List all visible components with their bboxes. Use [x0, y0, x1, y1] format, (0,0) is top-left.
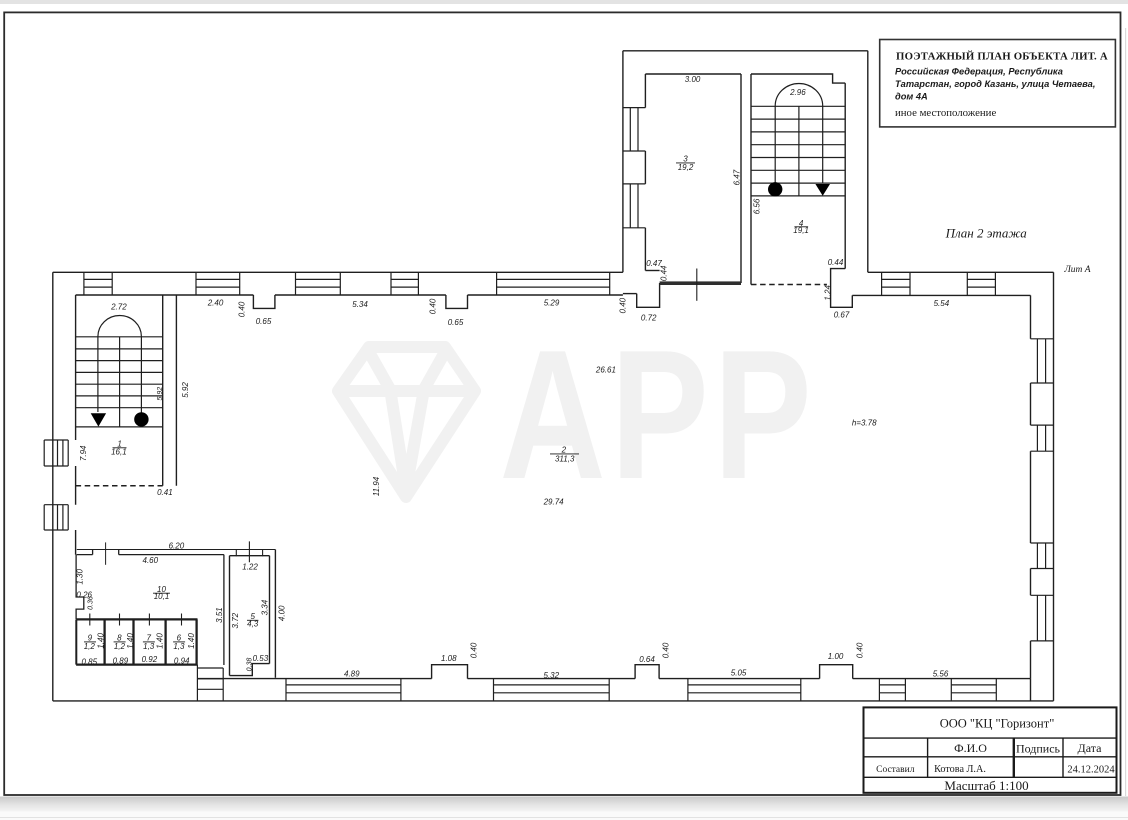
svg-text:7: 7 [146, 633, 151, 642]
svg-text:2.40: 2.40 [207, 298, 224, 307]
svg-text:6.56: 6.56 [753, 198, 762, 214]
svg-text:АРР: АРР [499, 312, 816, 517]
svg-text:0.65: 0.65 [256, 317, 272, 326]
svg-text:16,1: 16,1 [111, 448, 127, 457]
svg-text:1.40: 1.40 [187, 633, 196, 649]
svg-text:иное местоположение: иное местоположение [895, 107, 996, 119]
svg-text:0.64: 0.64 [639, 655, 655, 664]
svg-text:План 2 этажа: План 2 этажа [945, 226, 1028, 241]
svg-text:2: 2 [561, 446, 567, 455]
svg-text:3.72: 3.72 [231, 612, 240, 628]
svg-text:1,3: 1,3 [173, 642, 185, 651]
svg-text:0.44: 0.44 [828, 258, 844, 267]
svg-text:1.08: 1.08 [441, 654, 457, 663]
svg-text:1,2: 1,2 [114, 642, 126, 651]
svg-text:9: 9 [88, 633, 93, 642]
svg-text:0.85: 0.85 [82, 657, 98, 666]
svg-text:19,1: 19,1 [793, 226, 809, 235]
svg-text:5.92: 5.92 [181, 382, 190, 398]
svg-text:0.36: 0.36 [87, 596, 94, 610]
svg-text:24.12.2024: 24.12.2024 [1067, 764, 1115, 775]
svg-text:0.40: 0.40 [237, 301, 246, 317]
svg-text:2.72: 2.72 [110, 302, 127, 311]
svg-text:Татарстан, город Казань, улица: Татарстан, город Казань, улица Четаева, [895, 79, 1095, 89]
svg-text:2.96: 2.96 [789, 88, 806, 97]
svg-text:3.34: 3.34 [261, 599, 270, 615]
svg-text:1.40: 1.40 [96, 633, 105, 649]
svg-text:0.72: 0.72 [641, 313, 657, 322]
svg-text:8: 8 [117, 633, 122, 642]
svg-text:6.47: 6.47 [732, 169, 741, 185]
svg-text:5.34: 5.34 [352, 300, 368, 309]
svg-text:Лит А: Лит А [1063, 265, 1090, 275]
svg-text:1.00: 1.00 [828, 652, 844, 661]
svg-text:Ф.И.О: Ф.И.О [954, 741, 987, 755]
svg-text:5.92: 5.92 [157, 387, 164, 401]
svg-text:29.74: 29.74 [543, 497, 565, 506]
svg-text:0.40: 0.40 [469, 642, 478, 658]
svg-text:ПОЭТАЖНЫЙ ПЛАН ОБЪЕКТА ЛИТ. А: ПОЭТАЖНЫЙ ПЛАН ОБЪЕКТА ЛИТ. А [896, 51, 1108, 63]
svg-text:Составил: Составил [876, 765, 915, 775]
svg-text:0.94: 0.94 [174, 656, 190, 665]
svg-text:0.65: 0.65 [448, 318, 464, 327]
svg-text:0.40: 0.40 [619, 297, 628, 313]
svg-text:0.92: 0.92 [142, 655, 158, 664]
svg-text:11.94: 11.94 [372, 476, 381, 496]
svg-text:1,3: 1,3 [143, 642, 155, 651]
svg-text:0.89: 0.89 [113, 656, 129, 665]
svg-text:0.53: 0.53 [253, 654, 269, 663]
svg-text:5.54: 5.54 [934, 299, 950, 308]
svg-text:0.67: 0.67 [834, 310, 850, 319]
svg-text:3.00: 3.00 [685, 75, 701, 84]
svg-text:h=3.78: h=3.78 [852, 418, 877, 427]
svg-text:1.24: 1.24 [824, 285, 833, 301]
svg-text:5.29: 5.29 [544, 298, 560, 307]
svg-text:0.40: 0.40 [661, 642, 670, 658]
svg-text:Котова Л.А.: Котова Л.А. [934, 764, 986, 775]
svg-text:Дата: Дата [1078, 741, 1103, 755]
svg-text:0.40: 0.40 [855, 642, 864, 658]
svg-text:1.22: 1.22 [242, 563, 258, 572]
svg-text:7.94: 7.94 [79, 445, 88, 461]
svg-text:0.41: 0.41 [157, 488, 173, 497]
svg-text:0.40: 0.40 [428, 298, 437, 314]
svg-text:19,2: 19,2 [678, 163, 694, 172]
svg-text:4.00: 4.00 [278, 605, 287, 621]
svg-text:Российская Федерация, Республи: Российская Федерация, Республика [895, 67, 1063, 77]
svg-text:3.51: 3.51 [215, 607, 224, 623]
svg-text:6.20: 6.20 [169, 542, 185, 551]
svg-text:ООО "КЦ "Горизонт": ООО "КЦ "Горизонт" [940, 716, 1055, 730]
svg-text:5.32: 5.32 [544, 671, 560, 680]
svg-text:311,3: 311,3 [555, 454, 575, 463]
svg-text:0.38: 0.38 [246, 658, 253, 672]
svg-text:Масштаб 1:100: Масштаб 1:100 [944, 778, 1028, 793]
svg-text:1.30: 1.30 [75, 569, 84, 585]
svg-text:Подпись: Подпись [1016, 741, 1061, 755]
svg-text:4.89: 4.89 [344, 670, 360, 679]
svg-text:дом 4А: дом 4А [895, 92, 928, 102]
svg-text:1.40: 1.40 [126, 633, 135, 649]
svg-text:1.40: 1.40 [156, 633, 165, 649]
svg-text:1,2: 1,2 [84, 642, 96, 651]
svg-text:26.61: 26.61 [595, 366, 616, 375]
svg-text:0.44: 0.44 [660, 265, 669, 281]
svg-text:5.05: 5.05 [731, 669, 747, 678]
svg-text:5.56: 5.56 [933, 670, 949, 679]
svg-text:4.60: 4.60 [143, 556, 159, 565]
svg-text:6: 6 [177, 633, 182, 642]
